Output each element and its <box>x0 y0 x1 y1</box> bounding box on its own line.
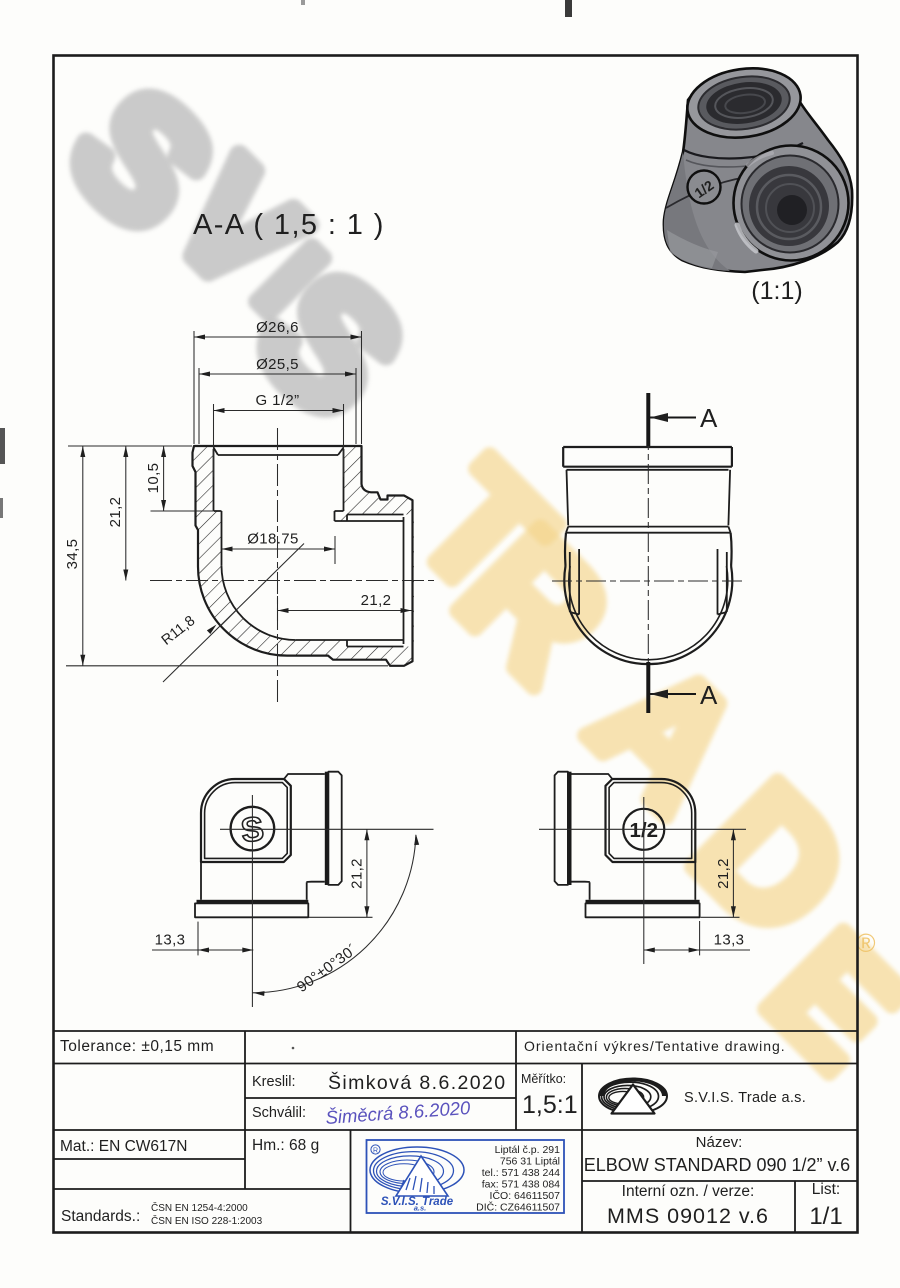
svg-text:756 31 Liptál: 756 31 Liptál <box>500 1156 560 1168</box>
svg-text:21,2: 21,2 <box>361 592 392 609</box>
svg-text:13,3: 13,3 <box>155 932 186 949</box>
svg-text:fax: 571 438 084: fax: 571 438 084 <box>482 1179 560 1191</box>
svg-text:G 1/2”: G 1/2” <box>255 392 299 409</box>
svg-text:Orientační výkres/Tentative dr: Orientační výkres/Tentative drawing. <box>524 1038 786 1054</box>
svg-text:Šimková 8.6.2020: Šimková 8.6.2020 <box>328 1071 507 1094</box>
svg-text:tel.: 571 438 244: tel.: 571 438 244 <box>482 1167 560 1179</box>
svg-text:ČSN EN ISO 228-1:2003: ČSN EN ISO 228-1:2003 <box>151 1214 263 1227</box>
svg-text:13,3: 13,3 <box>714 932 745 949</box>
svg-text:DIČ: CZ64611507: DIČ: CZ64611507 <box>476 1201 560 1214</box>
svg-text:MMS 09012 v.6: MMS 09012 v.6 <box>607 1204 769 1228</box>
svg-text:Interní ozn. / verze:: Interní ozn. / verze: <box>622 1183 755 1200</box>
svg-text:Mat.: EN CW617N: Mat.: EN CW617N <box>60 1138 187 1155</box>
svg-text:Měřítko:: Měřítko: <box>521 1072 566 1086</box>
svg-text:Tolerance: ±0,15 mm: Tolerance: ±0,15 mm <box>60 1038 214 1055</box>
svg-text:21,2: 21,2 <box>107 497 124 528</box>
svg-text:Schválil:: Schválil: <box>252 1105 306 1121</box>
svg-text:10,5: 10,5 <box>145 463 162 494</box>
svg-text:a.s.: a.s. <box>414 1204 427 1213</box>
svg-text:List:: List: <box>812 1181 840 1198</box>
svg-text:90°±0°30´: 90°±0°30´ <box>294 941 361 996</box>
svg-text:Liptál č.p. 291: Liptál č.p. 291 <box>495 1144 561 1156</box>
svg-text:S.V.I.S. Trade a.s.: S.V.I.S. Trade a.s. <box>684 1090 806 1106</box>
svg-text:R11,8: R11,8 <box>159 613 198 649</box>
svg-text:34,5: 34,5 <box>64 539 81 570</box>
svg-text:Název:: Název: <box>696 1134 743 1151</box>
svg-text:Standards.:: Standards.: <box>61 1208 140 1225</box>
svg-text:ELBOW STANDARD 090 1/2” v.6: ELBOW STANDARD 090 1/2” v.6 <box>584 1155 850 1175</box>
svg-text:Šiměcrá 8.6.2020: Šiměcrá 8.6.2020 <box>325 1097 472 1128</box>
svg-text:Kreslil:: Kreslil: <box>252 1074 296 1090</box>
svg-text:(1:1): (1:1) <box>751 277 802 305</box>
svg-text:Hm.: 68 g: Hm.: 68 g <box>252 1137 319 1154</box>
svg-text:A: A <box>700 403 718 433</box>
svg-text:A: A <box>700 680 718 710</box>
svg-text:IČO: 64611507: IČO: 64611507 <box>490 1189 561 1202</box>
svg-text:21,2: 21,2 <box>349 858 366 889</box>
svg-text:®: ® <box>856 928 875 958</box>
svg-text:R: R <box>373 1148 378 1155</box>
svg-text:Ø25,5: Ø25,5 <box>256 356 299 373</box>
svg-text:Ø26,6: Ø26,6 <box>256 319 299 336</box>
svg-text:ČSN EN 1254-4:2000: ČSN EN 1254-4:2000 <box>151 1201 248 1214</box>
svg-text:1/1: 1/1 <box>809 1203 842 1230</box>
svg-text:21,2: 21,2 <box>715 858 732 889</box>
svg-text:Ø18.75: Ø18.75 <box>247 531 299 548</box>
svg-text:A-A ( 1,5 : 1 ): A-A ( 1,5 : 1 ) <box>193 209 385 241</box>
svg-text:1,5:1: 1,5:1 <box>522 1091 578 1119</box>
